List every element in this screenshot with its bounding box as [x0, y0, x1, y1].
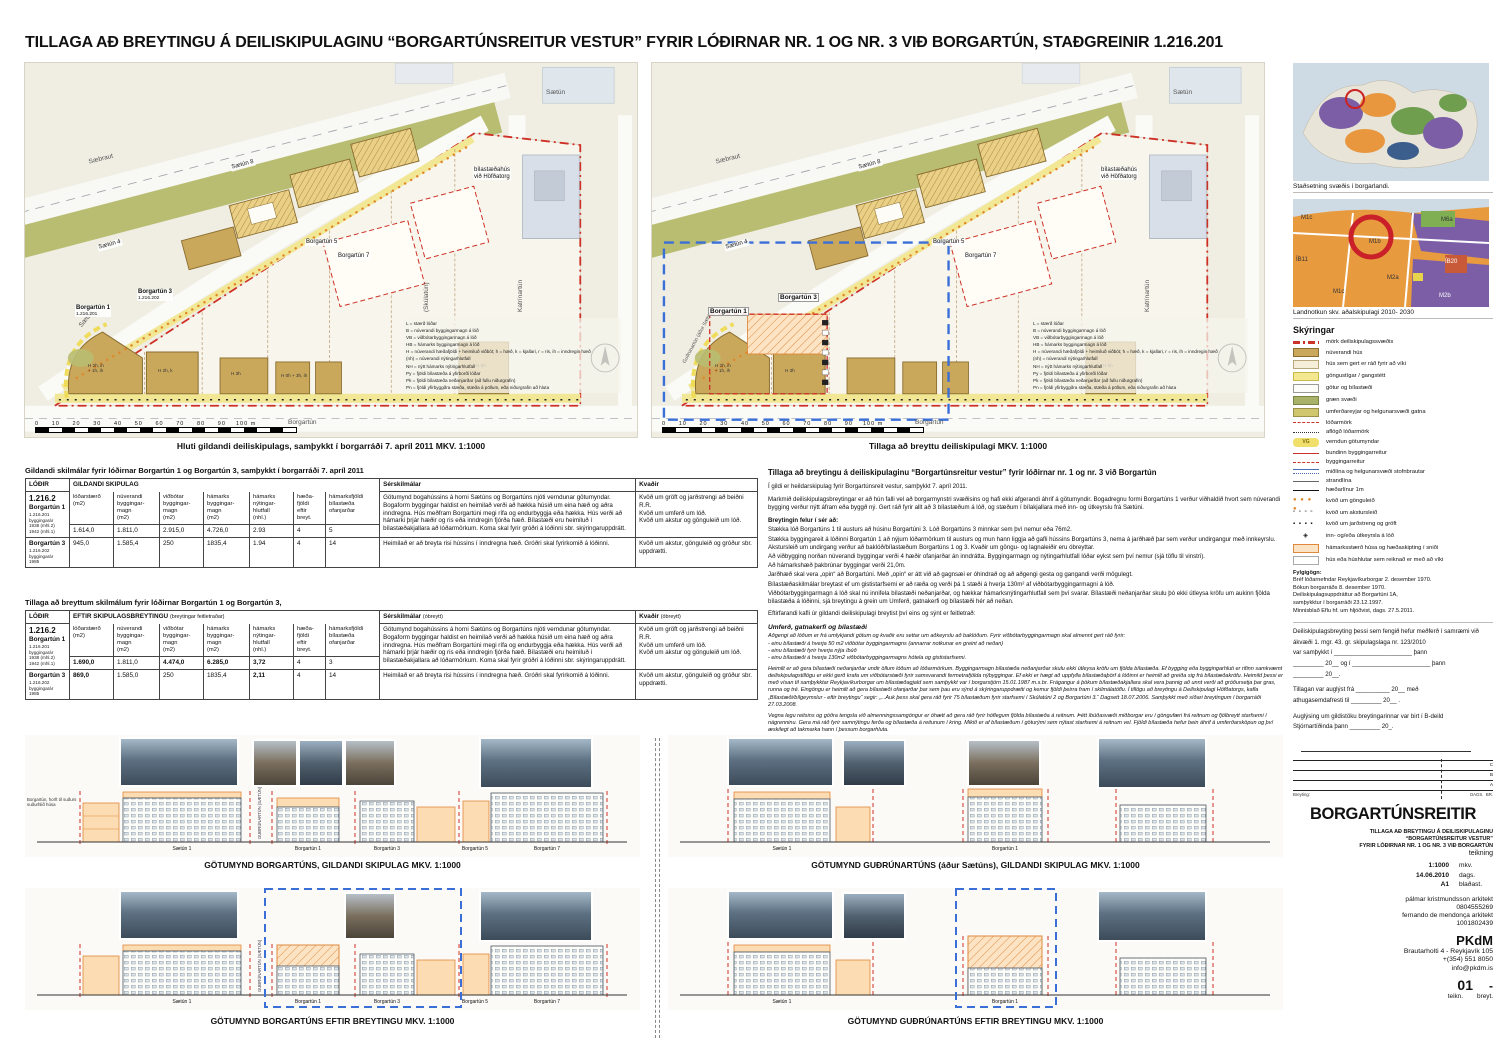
lot-label-borgartun5: Borgartún 5 — [305, 239, 338, 246]
street-label-katrinartun: Katrínartún — [517, 279, 524, 313]
map-abbreviation-legend: L = stærð lóðar B = núverandi byggingarm… — [1030, 318, 1248, 393]
elevation-note: Borgartún, horft til suðurs suðurhlið hú… — [27, 797, 113, 808]
lot-label-borgartun7: Borgartún 7 — [337, 253, 370, 260]
legend-item: ◈inn- og/eða útkeyrsla á lóð — [1293, 532, 1493, 541]
legend-item: lóðarmörk — [1293, 420, 1493, 426]
overview-map-landuse-caption: Landnotkun skv. aðalskipulagi 2010- 2030 — [1293, 309, 1493, 319]
architect-info: pálmar kristmundsson arkitekt 0804555269… — [1293, 896, 1493, 929]
page-title: TILLAGA AÐ BREYTINGU Á DEILISKIPULAGINU … — [25, 34, 1285, 52]
legend-item: mörk deiliskipulagssvæðis — [1293, 339, 1493, 345]
revision-table: C B A Breyting: DAGS. BR. — [1293, 760, 1493, 797]
building-to-go-swatch — [1293, 360, 1319, 369]
vg-protection-swatch: VG — [1293, 438, 1319, 447]
lot-cell: 1.216.2 Borgartún 1 1.216.201 byggingará… — [26, 492, 70, 538]
site-plan-current: Sæbraut Sætún Sætún Borgartún Katrínartú… — [25, 63, 637, 437]
lot-label-borgartun3: Borgartún 3 — [778, 293, 819, 302]
lot-label-borgartun5: Borgartún 5 — [932, 239, 965, 246]
lot-label-borgartun7: Borgartún 7 — [964, 253, 997, 260]
legend-item: hús eða húshlutar sem reiknað er með að … — [1293, 556, 1493, 565]
firm-address: Brautarholti 4 - Reykjavík 105 +(354) 55… — [1293, 948, 1493, 974]
elevation-caption-1: GÖTUMYND BORGARTÚNS, GILDANDI SKIPULAG M… — [25, 860, 640, 870]
building-annotation: H 2h, ih + 1h, ih — [714, 363, 732, 373]
max-size-section-swatch — [1293, 544, 1319, 553]
proposal-heading: Tillaga að breytingu á deiliskipulaginu … — [768, 468, 1286, 479]
elevation-caption-4: GÖTUMYND GUÐRÚNARTÚNS EFTIR BREYTINGU MK… — [668, 1016, 1283, 1026]
elevation-gudrunartun-breyting: Sætún 1 Borgartún 1 — [668, 888, 1283, 1014]
overview-map-landuse: M1c M6a M1b ÍB11 ÍB20 M2a M1c M2b — [1293, 199, 1489, 307]
firm-logo: PKdM — [1293, 933, 1493, 948]
group-header: EFTIR SKIPULAGSBREYTINGU (breytingar fei… — [70, 611, 380, 624]
umferd-heading: Umferð, gatnakerfi og bílastæði — [768, 624, 1286, 633]
legend-item: hús sem gert er ráð fyrir að víki — [1293, 360, 1493, 369]
group-header: GILDANDI SKIPULAG — [70, 479, 380, 492]
road-swatch — [1293, 384, 1319, 393]
legend-item: græn svæði — [1293, 396, 1493, 405]
legend-item: hámarksstærð húsa og hæðaskipting í snið… — [1293, 544, 1493, 553]
sidebar: Staðsetning svæðis í borgarlandi. M1c M6… — [1293, 63, 1493, 1000]
project-title: BORGARTÚNSREITIR — [1293, 805, 1493, 824]
ser-cell: Götumynd bogahússins á horni Sætúns og B… — [380, 624, 636, 670]
legend-item: núverandi hús — [1293, 348, 1493, 357]
elevation-drawing — [25, 888, 640, 1010]
proposal-subheading: Breytingin felur í sér að: — [768, 517, 1286, 525]
lot-cell: Borgartún 3 1.216.202 byggingarár 1985 — [26, 670, 70, 700]
legend-item: byggingarreitur — [1293, 459, 1493, 465]
table1-title: Gildandi skilmálar fyrir lóðirnar Borgar… — [25, 466, 364, 475]
proposal-text: Tillaga að breytingu á deiliskipulaginu … — [768, 468, 1286, 754]
sheet-size-value: A1 — [1441, 880, 1449, 890]
lot-cell: 1.216.2 Borgartún 1 1.216.201 byggingará… — [26, 624, 70, 670]
building-annotation: H 3h — [784, 368, 796, 373]
street-axis-label: GUÐRÚNARTÚN (SÆTÚN) — [257, 940, 262, 992]
legend-item: ▪ ▪ ▪ ▪kvöð um jarðstreng og gröft — [1293, 520, 1493, 529]
shoreline-swatch — [1293, 481, 1319, 482]
kv-cell: Kvöð um akstur, gönguleið og gróður sbr.… — [636, 538, 758, 568]
lot-label-bilastaedahus: bílastæðahús við Höfðatorg — [1100, 167, 1138, 180]
overview-map-city-caption: Staðsetning svæðis í borgarlandi. — [1293, 183, 1493, 193]
ser-cell: Heimilað er að breyta risi hússins í inn… — [380, 670, 636, 700]
legend-item: aflögð lóðarmörk — [1293, 429, 1493, 435]
table-gildandi-skilmalar: LÓÐIR GILDANDI SKIPULAG Sérskilmálar Kva… — [25, 478, 758, 568]
legend-item: göngustígar / gangstétt — [1293, 372, 1493, 381]
street-label-katrinartun: Katrínartún — [1144, 279, 1151, 313]
traffic-island-swatch — [1293, 408, 1319, 417]
building-envelope-swatch — [1293, 462, 1319, 463]
legend-item: VGverndun götumyndar — [1293, 438, 1493, 447]
old-lot-boundary-swatch — [1293, 432, 1319, 433]
arterial-centerline-swatch — [1293, 469, 1319, 474]
column-divider — [655, 738, 660, 1038]
street-axis-label: GUÐRÚNARTÚN (SÆTÚN) — [257, 787, 262, 839]
scale-bar: 0 10 20 30 40 50 60 70 80 90 100 m — [35, 421, 335, 433]
ser-cell: Heimilað er að breyta risi hússins í inn… — [380, 538, 636, 568]
removed-building-swatch — [1293, 556, 1319, 565]
drive-easement-icon: ▫ ▫ ▫ ▫ — [1293, 508, 1319, 517]
lot-boundary-swatch — [1293, 422, 1319, 423]
legend-item: bundinn byggingarreitur — [1293, 450, 1493, 456]
ser-header: Sérskilmálar — [380, 479, 636, 492]
drawing-type: teikning — [1293, 850, 1493, 857]
cable-easement-icon: ▪ ▪ ▪ ▪ — [1293, 520, 1319, 529]
footpath-swatch — [1293, 372, 1319, 381]
street-label-saetun-east: Sætún — [1172, 89, 1193, 96]
elevation-caption-2: GÖTUMYND GUÐRÚNARTÚNS (áður Sætúns), GIL… — [668, 860, 1283, 870]
sheet-number: 01 - — [1293, 977, 1493, 993]
table-tillaga-skilmalar: LÓÐIR EFTIR SKIPULAGSBREYTINGU (breyting… — [25, 610, 758, 700]
legend: mörk deiliskipulagssvæðis núverandi hús … — [1293, 339, 1493, 565]
legend-item: ▫ ▫ ▫ ▫kvöð um akstursleið — [1293, 508, 1493, 517]
contour-swatch — [1293, 490, 1319, 491]
map-caption-proposed: Tillaga að breyttu deiliskipulagi MKV. 1… — [652, 441, 1264, 451]
building-annotation: H 0h + 3h, ih — [280, 373, 308, 378]
lot-label-bilastaedahus: bílastæðahús við Höfðatorg — [473, 167, 511, 180]
site-plan-proposed: Sæbraut Guðrúnartún (áður Sætún) Sætún B… — [652, 63, 1264, 437]
kv-cell: Kvöð um gröft og jarðstrengi að beiðni R… — [636, 492, 758, 538]
table2-title: Tillaga að breyttum skilmálum fyrir lóði… — [25, 598, 282, 607]
kv-cell: Kvöð um gröft og jarðstrengi að beiðni R… — [636, 624, 758, 670]
legend-item: ● ● ● ●kvöð um gönguleið — [1293, 496, 1493, 505]
elevation-caption-3: GÖTUMYND BORGARTÚNS EFTIR BREYTINGU MKV.… — [25, 1016, 640, 1026]
col-lodir: LÓÐIR — [26, 611, 70, 624]
project-subtitle: TILLAGA AÐ BREYTINGU Á DEILISKIPULAGINU … — [1293, 829, 1493, 850]
scale-value: 1:1000 — [1428, 861, 1449, 871]
attachments: Fylgigögn: Bréf lóðarnefndar Reykjavíkur… — [1293, 570, 1493, 615]
ser-header: Sérskilmálar (óbreytt) — [380, 611, 636, 624]
legend-item: hæðarlínur 1m — [1293, 487, 1493, 493]
building-annotation: H 2h, k — [157, 368, 174, 373]
lot-label-borgartun3: Borgartún 31.216.202 — [137, 289, 173, 301]
date-value: 14.06.2010 — [1416, 871, 1449, 881]
street-label-saetun-east: Sætún — [545, 89, 566, 96]
fixed-building-line-swatch — [1293, 453, 1319, 454]
entry-exit-icon: ◈ — [1293, 532, 1319, 541]
approval-block: Deiliskipulagsbreyting þessi sem fengið … — [1293, 622, 1493, 733]
elevation-drawing — [668, 888, 1283, 1010]
street-label-skulatun: (Skúlatún) — [423, 281, 430, 313]
building-annotation: H 3h — [230, 371, 242, 376]
building-annotation: H 2h, ih + 1h, ih — [87, 363, 105, 373]
elevation-borgartun-gildandi: Borgartún, horft til suðurs suðurhlið hú… — [25, 735, 640, 861]
legend-item: miðlína og helgunarsvæði stofnbrautar — [1293, 469, 1493, 475]
kv-header: Kvaðir — [636, 479, 758, 492]
map-abbreviation-legend: L = stærð lóðar B = núverandi byggingarm… — [403, 318, 621, 393]
lot-cell: Borgartún 3 1.216.202 byggingarár 1985 — [26, 538, 70, 568]
elevation-drawing — [668, 735, 1283, 857]
plan-sheet: TILLAGA AÐ BREYTINGU Á DEILISKIPULAGINU … — [0, 0, 1500, 1060]
plan-boundary-swatch — [1293, 341, 1319, 344]
ser-cell: Götumynd bogahússins á horni Sætúns og B… — [380, 492, 636, 538]
legend-item: umferðareyjar og helgunarsvæði gatna — [1293, 408, 1493, 417]
elevation-drawing — [25, 735, 640, 857]
elevation-borgartun-breyting: GUÐRÚNARTÚN (SÆTÚN) Sætún 1 Borgartún 1 … — [25, 888, 640, 1014]
existing-building-swatch — [1293, 348, 1319, 357]
signature-line — [1301, 743, 1471, 752]
walkway-easement-icon: ● ● ● ● — [1293, 496, 1319, 505]
map-caption-current: Hluti gildandi deiliskipulags, samþykkt … — [25, 441, 637, 451]
col-lodir: LÓÐIR — [26, 479, 70, 492]
legend-item: götur og bílastæði — [1293, 384, 1493, 393]
kv-cell: Kvöð um akstur, gönguleið og gróður sbr.… — [636, 670, 758, 700]
kv-header: Kvaðir (óbreytt) — [636, 611, 758, 624]
elevation-gudrunartun-gildandi: Sætún 1 Borgartún 1 — [668, 735, 1283, 861]
legend-item: strandlína — [1293, 478, 1493, 484]
green-area-swatch — [1293, 396, 1319, 405]
lot-label-borgartun1: Borgartún 11.216.201 — [75, 305, 111, 317]
legend-title: Skýringar — [1293, 325, 1493, 335]
overview-map-city — [1293, 63, 1489, 181]
scale-bar: 0 10 20 30 40 50 60 70 80 90 100 m — [662, 421, 962, 433]
lot-label-borgartun1: Borgartún 1 — [708, 307, 749, 316]
